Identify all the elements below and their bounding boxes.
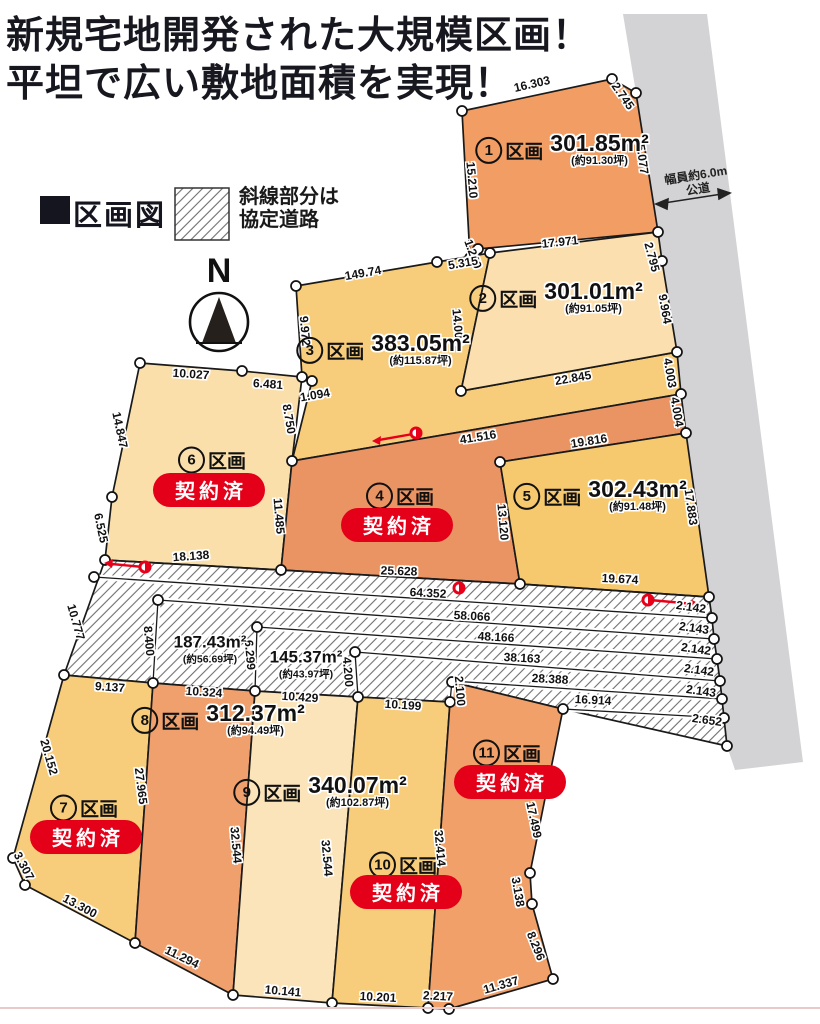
plot-area: 301.85m² [550, 132, 648, 155]
road-area-tsubo: (約43.97坪) [279, 666, 333, 681]
dimension-label: 10.201 [359, 989, 396, 1005]
dimension-label: 25.628 [380, 563, 417, 578]
plot-1-label: 1区画301.85m²(約91.30坪) [475, 132, 648, 168]
road-area-tsubo: (約56.69坪) [183, 651, 237, 666]
dimension-label: 10.199 [384, 697, 422, 714]
plot-suffix: 区画 [80, 795, 118, 822]
plot-area-block: 312.37m²(約94.49坪) [206, 702, 304, 738]
plot-7-label: 7区画 [50, 795, 118, 822]
dimension-label: 9.137 [95, 679, 126, 695]
plot-number-circle: 6 [178, 447, 205, 474]
dimension-label: 19.674 [601, 571, 638, 587]
plot-area-block: 383.05m²(約115.87坪) [371, 332, 469, 368]
dimension-label: 6.481 [253, 376, 284, 392]
dimension-label: 8.400 [141, 625, 158, 656]
agreement-road-area-label: 145.37m²(約43.97坪) [270, 649, 343, 682]
plot-11-shape [428, 682, 563, 1009]
plot-suffix: 区画 [208, 447, 246, 474]
road-area-value: 187.43m² [174, 634, 247, 652]
plot-tsubo: (約94.49坪) [227, 725, 284, 738]
plot-area: 301.01m² [544, 280, 642, 303]
plot-number-circle: 5 [513, 483, 540, 510]
bottom-divider [0, 1007, 820, 1009]
dimension-label: 11.485 [270, 497, 287, 534]
plot-number-circle: 9 [233, 779, 260, 806]
dimension-label: 58.066 [453, 608, 490, 624]
plot-tsubo: (約91.30坪) [571, 155, 628, 168]
dimension-label: 16.914 [574, 692, 611, 708]
plot-11-status-badge: 契約済 [454, 765, 566, 799]
plot-4-label: 4区画 [366, 483, 434, 510]
plot-5-label: 5区画302.43m²(約91.48坪) [513, 478, 686, 514]
compass-north-label: N [207, 252, 232, 291]
plot-tsubo: (約91.48坪) [609, 501, 666, 514]
plot-area-block: 301.85m²(約91.30坪) [550, 132, 648, 168]
plot-7-status-badge: 契約済 [30, 820, 142, 854]
legend-hatch-caption: 斜線部分は 協定道路 [239, 186, 339, 232]
plot-number-circle: 11 [473, 740, 500, 767]
plot-area: 340.07m² [308, 774, 406, 797]
plot-suffix: 区画 [396, 483, 434, 510]
plot-area: 383.05m² [371, 332, 469, 355]
plot-suffix: 区画 [505, 137, 543, 164]
dimension-label: 2.100 [452, 675, 469, 706]
plot-tsubo: (約115.87坪) [389, 355, 451, 368]
dimension-label: 18.138 [172, 548, 210, 565]
dimension-label: 38.163 [503, 650, 540, 666]
plot-4-status-badge: 契約済 [341, 508, 453, 542]
compass-icon [190, 293, 248, 351]
plot-11-label: 11区画 [473, 740, 541, 767]
plot-number-circle: 7 [50, 795, 77, 822]
dimension-label: 10.027 [172, 366, 210, 383]
plot-area-block: 340.07m²(約102.87坪) [308, 774, 406, 810]
plot-10-status-badge: 契約済 [350, 875, 462, 909]
plot-6-status-badge: 契約済 [153, 473, 265, 507]
plot-area: 302.43m² [588, 478, 686, 501]
legend-hatch-line2: 協定道路 [239, 209, 339, 232]
legend-hatch-line1: 斜線部分は [239, 186, 339, 209]
dimension-label: 64.352 [409, 585, 446, 601]
plot-suffix: 区画 [263, 779, 301, 806]
dimension-label: 10.324 [185, 684, 223, 701]
page-title-line2: 平坦で広い敷地面積を実現！ [6, 52, 513, 107]
plot-area-block: 301.01m²(約91.05坪) [544, 280, 642, 316]
legend-map-title: 区画図 [73, 192, 166, 234]
plot-suffix: 区画 [543, 483, 581, 510]
plot-suffix: 区画 [503, 740, 541, 767]
plot-number-circle: 2 [469, 285, 496, 312]
dimension-label: 2.217 [423, 988, 454, 1004]
plot-9-label: 9区画340.07m²(約102.87坪) [233, 774, 406, 810]
plot-tsubo: (約102.87坪) [326, 797, 389, 810]
dimension-label: 48.166 [477, 629, 514, 645]
page-title-line1: 新規宅地開発された大規模区画！ [6, 4, 591, 59]
plot-8-label: 8区画312.37m²(約94.49坪) [131, 702, 304, 738]
plot-suffix: 区画 [161, 707, 199, 734]
plot-suffix: 区画 [326, 337, 364, 364]
plot-suffix: 区画 [499, 285, 537, 312]
plot-number-circle: 8 [131, 707, 158, 734]
legend-hatch-swatch [175, 188, 229, 240]
plot-3-label: 3区画383.05m²(約115.87坪) [296, 332, 469, 368]
road-area-value: 145.37m² [270, 649, 343, 667]
plot-number-circle: 1 [475, 137, 502, 164]
plot-number-circle: 4 [366, 483, 393, 510]
plot-tsubo: (約91.05坪) [565, 303, 622, 316]
plot-number-circle: 3 [296, 337, 323, 364]
plot-6-label: 6区画 [178, 447, 246, 474]
legend-black-swatch [40, 196, 70, 224]
plot-2-label: 2区画301.01m²(約91.05坪) [469, 280, 642, 316]
dimension-label: 28.388 [531, 671, 568, 687]
plot-area-block: 302.43m²(約91.48坪) [588, 478, 686, 514]
flyer-plot-map: 新規宅地開発された大規模区画！ 平坦で広い敷地面積を実現！ 区画図 斜線部分は … [0, 0, 820, 1024]
agreement-road-area-label: 187.43m²(約56.69坪) [174, 634, 247, 667]
plot-area: 312.37m² [206, 702, 304, 725]
